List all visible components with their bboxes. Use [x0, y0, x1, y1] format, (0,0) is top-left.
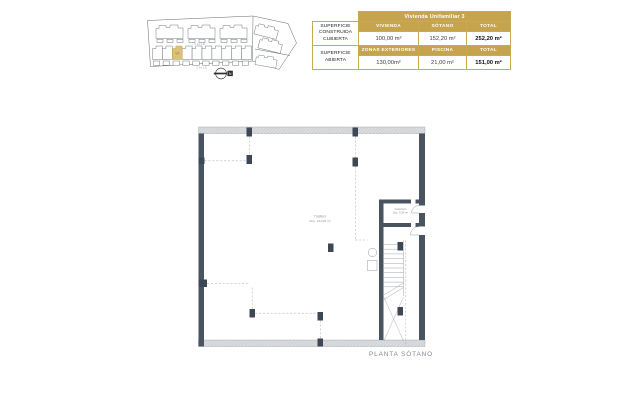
- column: [398, 242, 404, 251]
- wall-bottom: [199, 340, 426, 347]
- header-piscina: PISCINA: [419, 46, 467, 56]
- site-houses-right-wing: [254, 23, 283, 68]
- column: [398, 307, 404, 316]
- header-sotano: SÓTANO: [419, 22, 467, 32]
- wall-top: [199, 127, 426, 134]
- plan-caption: PLANTA SÓTANO: [369, 349, 433, 358]
- column: [318, 339, 324, 347]
- column: [318, 312, 324, 321]
- stair-break-line: [384, 283, 404, 300]
- header-total-1: TOTAL: [467, 22, 511, 32]
- table-title: Vivienda Unifamiliar 3: [359, 12, 511, 22]
- stair-under-hatch: [384, 297, 404, 341]
- wall-left: [199, 134, 205, 347]
- surface-area-table: Vivienda Unifamiliar 3 SUPERFICIE CONSTR…: [312, 11, 511, 70]
- header-vivienda: VIVIENDA: [359, 22, 419, 32]
- street-label-top: CALLE: [195, 43, 206, 46]
- value-total-1: 252,20 m²: [467, 32, 511, 46]
- value-sotano: 152,20 m²: [419, 32, 467, 46]
- interior-walls: [379, 200, 419, 341]
- north-compass-icon: N: [214, 68, 233, 79]
- compass-letter: N: [229, 72, 232, 76]
- wall-vestibule-south: [384, 223, 412, 227]
- site-garage-row: [153, 61, 249, 65]
- street-label-bottom: CALLE: [197, 66, 208, 69]
- room-labels: Trastero Sup. 134,06 m² Vestíbulo Sup. 5…: [309, 207, 408, 223]
- exterior-walls: [199, 127, 426, 347]
- row-label-superficie-abierta: SUPERFICIE ABIERTA: [313, 46, 359, 70]
- wall-pilaster: [199, 280, 208, 288]
- wall-pilaster: [199, 158, 205, 165]
- value-vivienda: 100,00 m²: [359, 32, 419, 46]
- wall-right: [419, 134, 425, 341]
- row-label-superficie-construida: SUPERFICIE CONSTRUIDA CUBIERTA: [313, 22, 359, 46]
- value-zonas-exteriores: 130,00m²: [359, 56, 419, 70]
- staircase: [384, 241, 404, 342]
- dashed-guides: [205, 137, 406, 346]
- room-name-vestibulo: Vestíbulo: [395, 207, 407, 211]
- wall-vestibule-north: [384, 200, 412, 204]
- site-plots-middle-row: [153, 46, 252, 60]
- site-highlighted-plot: V3: [172, 46, 182, 60]
- square-fixture: [368, 261, 378, 271]
- room-area-trastero: Sup. 134,06 m²: [309, 219, 330, 223]
- wall-stair-west: [379, 200, 384, 341]
- site-houses-top-row: [156, 25, 247, 43]
- column: [247, 128, 253, 137]
- room-area-vestibulo: Sup. 5,24 m²: [393, 210, 408, 214]
- column: [247, 155, 253, 164]
- column: [353, 128, 359, 137]
- header-zonas-exteriores: ZONAS EXTERIORES: [359, 46, 419, 56]
- basement-floor-plan: Trastero Sup. 134,06 m² Vestíbulo Sup. 5…: [185, 115, 440, 365]
- column: [353, 158, 359, 167]
- table-corner-spacer: [313, 12, 359, 22]
- room-name-trastero: Trastero: [314, 215, 327, 219]
- column: [250, 309, 256, 318]
- value-piscina: 21,00 m²: [419, 56, 467, 70]
- highlighted-plot-label: V3: [175, 52, 179, 56]
- columns: [199, 128, 404, 347]
- site-plan-map: V3 CALLE CALLE N: [140, 8, 300, 100]
- fixtures: [368, 248, 378, 270]
- value-total-2: 151,00 m²: [467, 56, 511, 70]
- round-fixture: [368, 248, 377, 257]
- column: [328, 244, 334, 253]
- wall-vestibule-north-stub: [416, 200, 420, 204]
- header-total-2: TOTAL: [467, 46, 511, 56]
